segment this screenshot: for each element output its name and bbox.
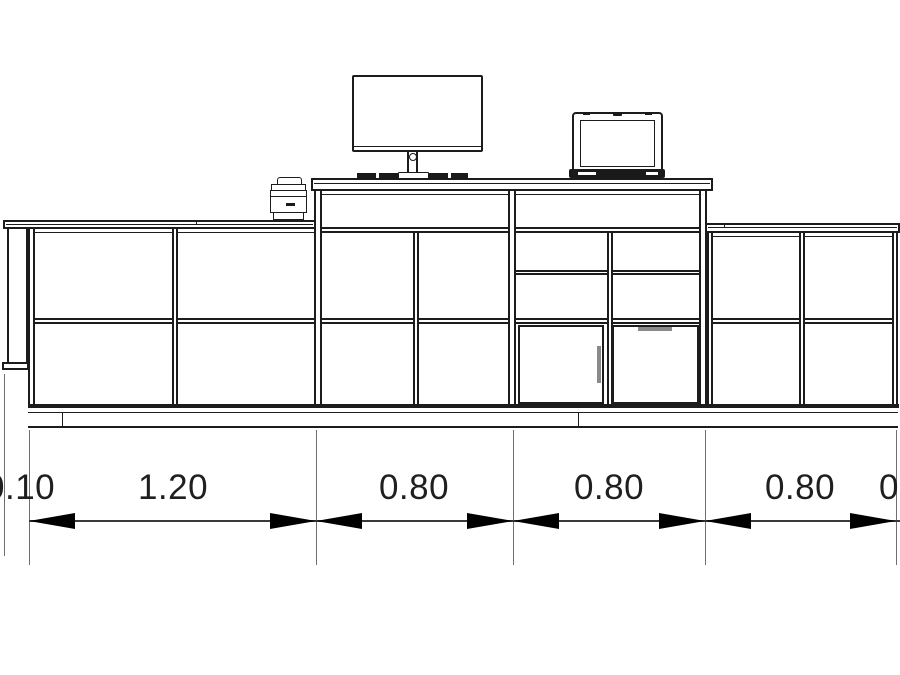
printer-base: [273, 212, 304, 220]
dim-arrow-left: [513, 513, 559, 529]
dimension-line: [29, 520, 900, 522]
cabinet-c-frieze-hairline: [516, 194, 699, 195]
dim-label-0-80-c: 0.80: [765, 470, 835, 506]
cabinet-a-left-stile: [28, 229, 35, 408]
monitor-stand-hinge: [409, 153, 417, 161]
printer-body: [270, 190, 307, 213]
right-door-handle: [638, 327, 672, 331]
cabinet-a-divider: [172, 229, 178, 408]
monitor-base: [398, 172, 429, 179]
monitor-chin-line: [354, 146, 481, 147]
dim-label-clipped: 0: [879, 470, 899, 506]
keyboard: [451, 173, 468, 179]
cabinet-d-left-stile: [707, 233, 713, 408]
furniture-elevation-drawing: 0.10 1.20 0.80 0.80 0.80 0: [0, 0, 900, 675]
cabinet-c-left-door: [518, 325, 604, 404]
cabinet-c-right-door: [612, 325, 699, 404]
monitor-screen: [352, 75, 483, 152]
left-return-panel: [7, 229, 28, 363]
dim-label-0-10: 0.10: [0, 470, 55, 506]
dim-arrow-left: [29, 513, 75, 529]
printer-slot: [286, 203, 295, 206]
laptop-hinge-mark: [583, 112, 590, 115]
dim-arrow-right: [659, 513, 705, 529]
right-counter-top: [705, 223, 900, 233]
cabinet-b-left-stile: [314, 191, 322, 408]
upper-counter-top: [311, 178, 713, 191]
cabinet-c-right-stile: [699, 191, 707, 408]
dim-arrow-left: [705, 513, 751, 529]
cabinet-bc-shared-stile: [508, 191, 516, 408]
left-door-handle: [597, 346, 601, 383]
cabinet-b-frieze-hairline: [322, 194, 508, 195]
laptop-screen: [580, 120, 655, 167]
cabinet-bottom-edge: [28, 404, 899, 408]
cabinet-d-divider: [799, 233, 805, 408]
dim-arrow-right: [467, 513, 513, 529]
dim-label-1-20: 1.20: [138, 470, 208, 506]
plinth-joint-mark: [578, 412, 579, 428]
extension-line: [4, 374, 5, 556]
cabinet-d-right-stile: [892, 233, 898, 408]
extension-line: [705, 430, 706, 565]
dim-arrow-left: [316, 513, 362, 529]
dim-arrow-right: [850, 513, 896, 529]
keyboard: [357, 173, 376, 179]
counter-joint-mark: [724, 223, 725, 228]
counter-joint-mark: [196, 220, 197, 225]
plinth-joint-mark: [62, 412, 63, 428]
left-counter-top: [3, 220, 316, 229]
left-return-cap: [2, 362, 29, 370]
cabinet-b-divider: [413, 233, 419, 408]
printer-body-line: [271, 196, 306, 197]
laptop-base-slot: [578, 172, 596, 175]
dim-arrow-right: [270, 513, 316, 529]
keyboard: [429, 173, 448, 179]
laptop-hinge-mark: [645, 112, 652, 115]
plinth: [28, 412, 898, 428]
keyboard: [379, 173, 400, 179]
dim-label-0-80-b: 0.80: [574, 470, 644, 506]
extension-line: [316, 430, 317, 565]
laptop-camera: [613, 112, 622, 116]
laptop-base-slot: [646, 172, 658, 175]
dim-label-0-80-a: 0.80: [379, 470, 449, 506]
extension-line: [513, 430, 514, 565]
